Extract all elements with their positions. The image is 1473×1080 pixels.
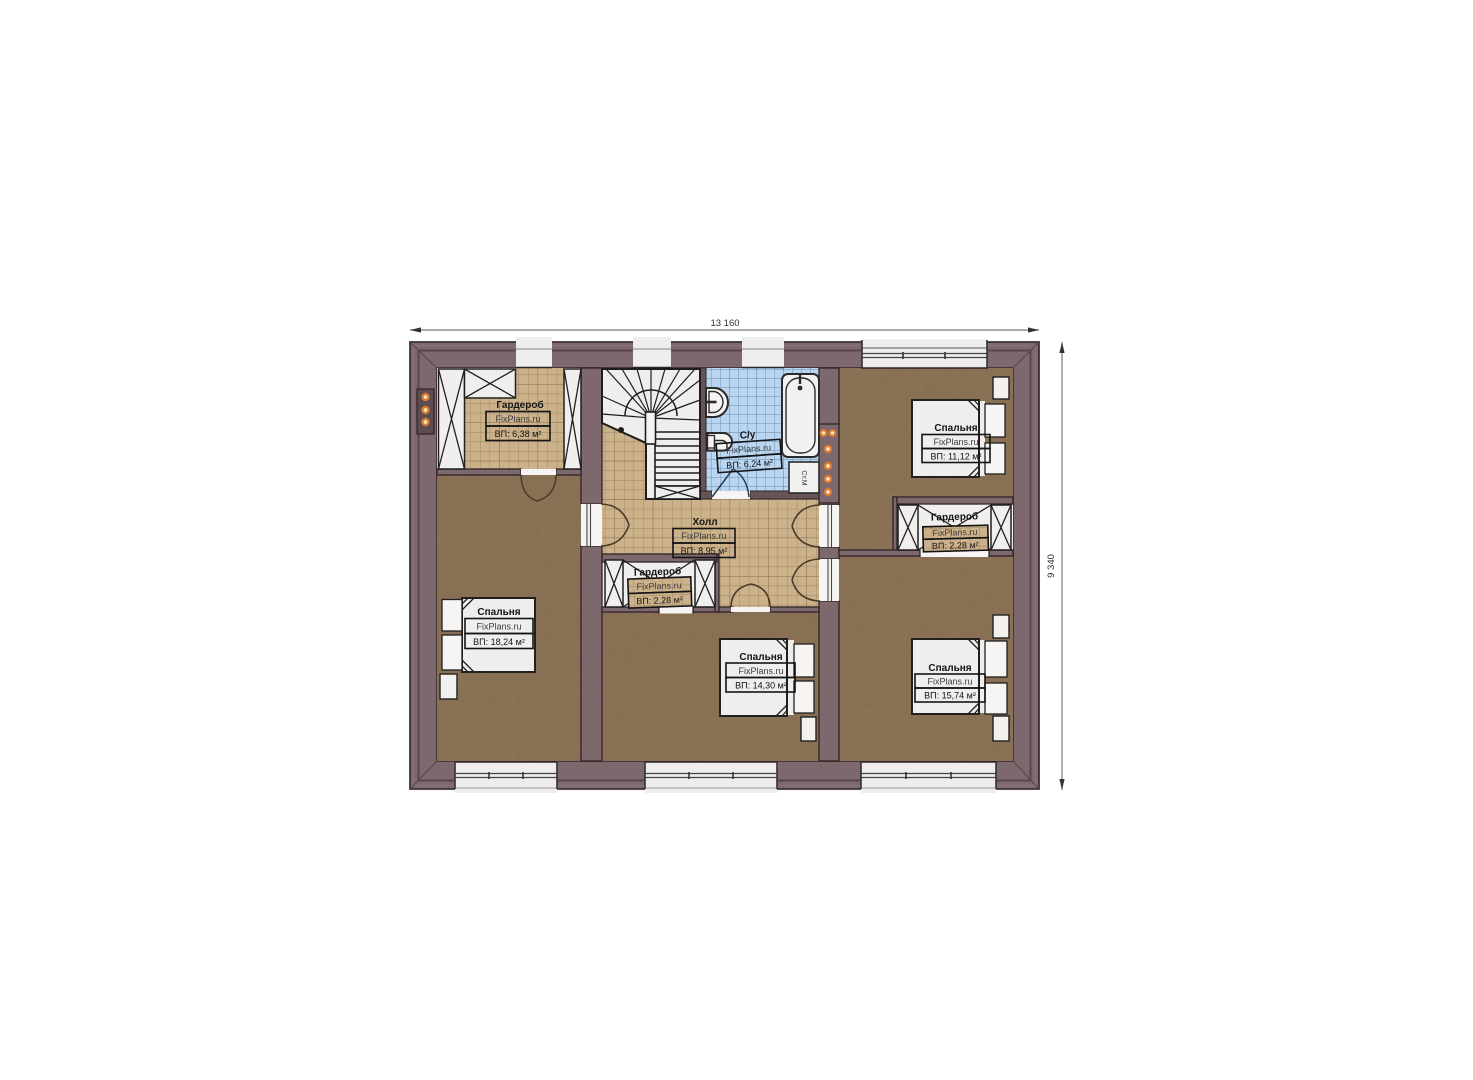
svg-text:ВП: 15,74 м²: ВП: 15,74 м² [924,691,976,701]
svg-text:Спальня: Спальня [477,607,520,618]
svg-text:Гардероб: Гардероб [931,510,979,523]
svg-text:Гардероб: Гардероб [496,399,543,411]
svg-text:FixPlans.ru: FixPlans.ru [738,666,783,676]
svg-text:ВП: 14,30 м²: ВП: 14,30 м² [735,681,787,691]
svg-text:13 160: 13 160 [710,318,739,329]
svg-text:ВП: 8,95 м²: ВП: 8,95 м² [681,546,728,556]
svg-text:Спальня: Спальня [739,652,782,663]
svg-text:FixPlans.ru: FixPlans.ru [932,527,977,538]
svg-text:ВП: 11,12 м²: ВП: 11,12 м² [930,452,981,462]
svg-text:С/у: С/у [739,429,756,441]
svg-text:FixPlans.ru: FixPlans.ru [927,677,972,687]
svg-text:FixPlans.ru: FixPlans.ru [681,531,726,541]
svg-text:Спальня: Спальня [928,663,971,674]
svg-text:Ст.М: Ст.М [800,470,807,485]
svg-text:FixPlans.ru: FixPlans.ru [636,580,681,592]
svg-text:Спальня: Спальня [934,423,977,434]
svg-text:ВП: 2,28 м²: ВП: 2,28 м² [636,595,683,607]
svg-text:9 340: 9 340 [1046,554,1057,578]
svg-text:FixPlans.ru: FixPlans.ru [476,622,521,632]
svg-text:FixPlans.ru: FixPlans.ru [933,437,978,447]
svg-text:ВП: 6,38 м²: ВП: 6,38 м² [495,429,542,439]
svg-text:ВП: 18,24 м²: ВП: 18,24 м² [473,637,525,647]
svg-text:FixPlans.ru: FixPlans.ru [495,414,540,424]
svg-text:Холл: Холл [692,517,717,528]
svg-text:ВП: 2,28 м²: ВП: 2,28 м² [932,540,979,551]
